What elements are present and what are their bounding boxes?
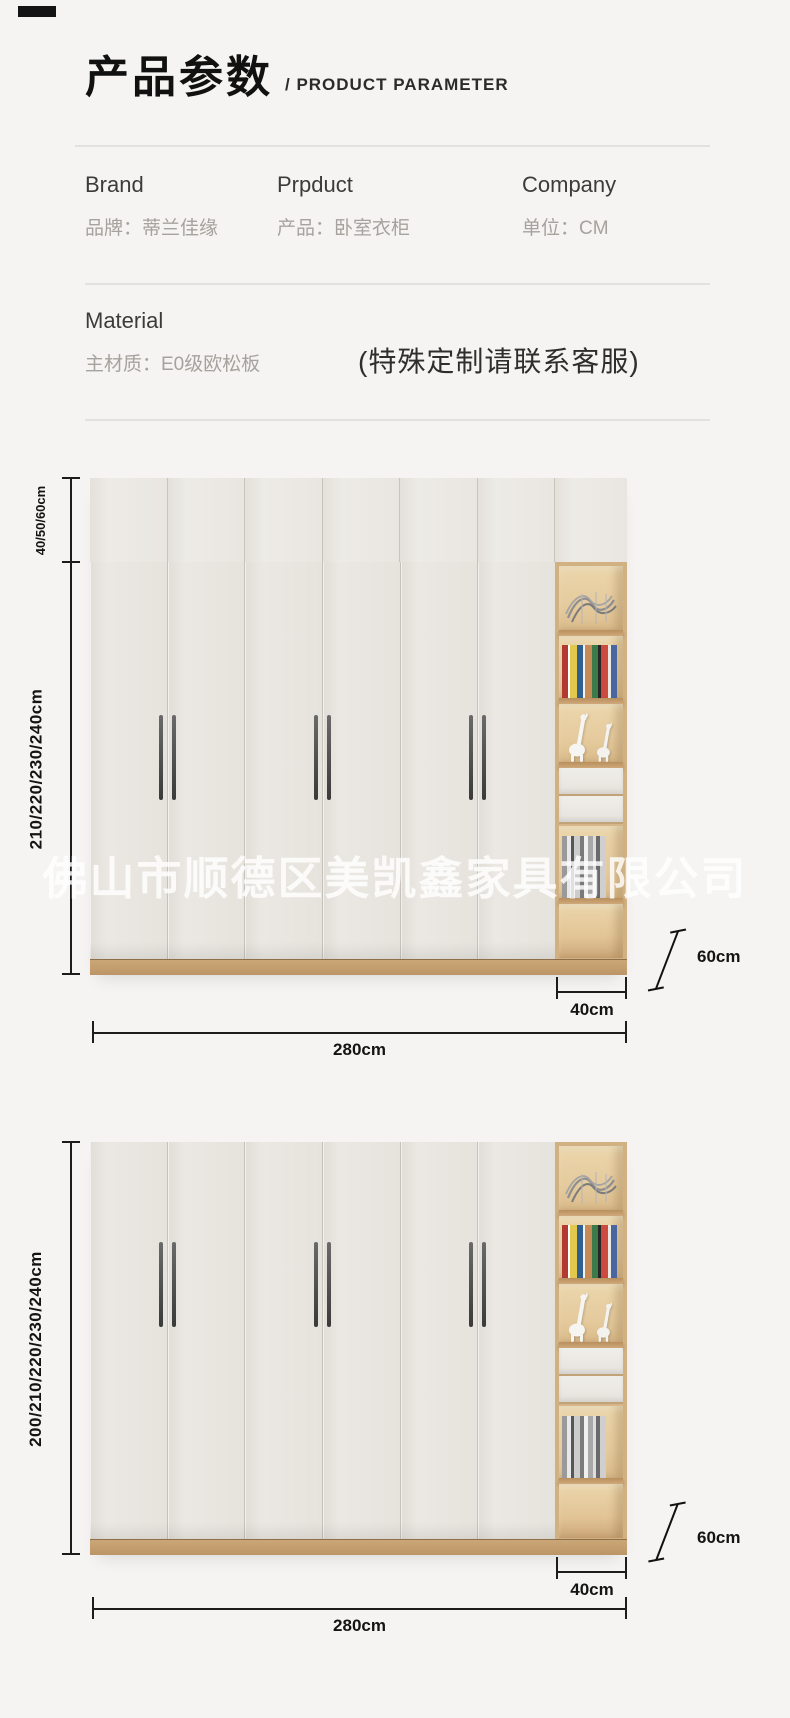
door-handle [172, 1242, 176, 1327]
figurine-compartment [559, 1284, 623, 1342]
dim-total-width-label: 280cm [92, 1040, 627, 1060]
top-cabinet-row [90, 478, 627, 564]
wardrobe-door [477, 1142, 555, 1540]
dim-top-height-label-wrap: 40/50/60cm [20, 478, 62, 562]
wardrobe-body [90, 1142, 627, 1540]
wardrobe-body [90, 562, 627, 960]
section-divider [75, 145, 710, 147]
dimension-tick [62, 477, 80, 479]
info-material: Material 主材质：E0级欧松板 [85, 308, 260, 376]
height-dimension-line [70, 478, 72, 975]
side-width-dimension-line [556, 991, 627, 993]
depth-dimension-line [655, 1504, 678, 1561]
page-title-zh: 产品参数 [85, 54, 273, 102]
top-cabinet-door [167, 478, 245, 562]
dimension-tick [556, 977, 558, 999]
door-handle [482, 715, 486, 800]
dim-body-height-label: 210/220/230/240cm [26, 688, 46, 849]
side-width-dimension-line [556, 1571, 627, 1573]
side-shelf-column [555, 562, 627, 960]
books-compartment [559, 1216, 623, 1278]
drawer-front [559, 1348, 623, 1376]
wardrobe-door [400, 562, 478, 960]
wardrobe-door [244, 1142, 322, 1540]
unit-label: Company [522, 172, 616, 198]
info-brand: Brand 品牌：蒂兰佳缘 [85, 172, 218, 240]
top-cabinet-door [477, 478, 555, 562]
top-cabinet-door [322, 478, 400, 562]
dim-body-height-label-wrap: 200/210/220/230/240cm [14, 1142, 58, 1555]
dimension-tick [625, 1557, 627, 1579]
books-compartment [559, 1406, 623, 1478]
books-decor [562, 1225, 618, 1278]
door-handle [469, 715, 473, 800]
page-title-en: / PRODUCT PARAMETER [285, 75, 509, 102]
drawer-front [559, 796, 623, 824]
wardrobe-door [322, 562, 400, 960]
corner-mark [18, 6, 56, 17]
door-handle [159, 715, 163, 800]
books-decor [562, 1416, 618, 1478]
material-value: 主材质：E0级欧松板 [85, 349, 260, 376]
top-cabinet-door [90, 478, 167, 562]
drawer-front [559, 768, 623, 796]
open-compartment [559, 1484, 623, 1538]
dimension-tick [625, 977, 627, 999]
wardrobe-door [322, 1142, 400, 1540]
books-decor [562, 645, 618, 698]
door-handle [482, 1242, 486, 1327]
product-value: 产品：卧室衣柜 [277, 213, 410, 240]
brand-value: 品牌：蒂兰佳缘 [85, 213, 218, 240]
hanger-icon [562, 1164, 620, 1208]
wardrobe-doors [90, 1142, 555, 1540]
door-handle [327, 1242, 331, 1327]
door-handle [314, 715, 318, 800]
books-compartment [559, 636, 623, 698]
info-product: Prpduct 产品：卧室衣柜 [277, 172, 410, 240]
dim-total-width-label: 280cm [92, 1616, 627, 1636]
hanger-compartment [559, 566, 623, 630]
custom-order-note: (特殊定制请联系客服) [358, 340, 640, 380]
product-parameter-page: 产品参数 / PRODUCT PARAMETER Brand 品牌：蒂兰佳缘 P… [0, 0, 790, 1718]
dim-depth-label: 60cm [697, 1528, 740, 1548]
figurine-compartment [559, 704, 623, 762]
wardrobe-door [167, 1142, 245, 1540]
giraffe-figurine [567, 1292, 591, 1342]
dim-top-height-label: 40/50/60cm [34, 485, 49, 554]
info-unit: Company 单位：CM [522, 172, 616, 240]
door-handle [469, 1242, 473, 1327]
total-width-dimension-line [92, 1608, 627, 1610]
wardrobe-door [477, 562, 555, 960]
dimension-tick [62, 973, 80, 975]
wardrobe-diagram-2 [90, 1142, 627, 1555]
top-cabinet-door [399, 478, 477, 562]
dim-body-height-label-wrap: 210/220/230/240cm [14, 562, 58, 975]
giraffe-figurine [595, 722, 615, 762]
giraffe-figurine [595, 1302, 615, 1342]
base-plinth [90, 959, 627, 975]
door-handle [327, 715, 331, 800]
side-shelf-column [555, 1142, 627, 1540]
dimension-tick [62, 1141, 80, 1143]
wardrobe-door [90, 562, 167, 960]
hanger-compartment [559, 1146, 623, 1210]
door-handle [314, 1242, 318, 1327]
depth-dimension-line [655, 931, 679, 990]
dim-side-width-label: 40cm [548, 1000, 636, 1020]
base-plinth [90, 1539, 627, 1555]
books-compartment [559, 826, 623, 898]
height-dimension-line [70, 1142, 72, 1555]
drawer-front [559, 1376, 623, 1404]
dim-side-width-label: 40cm [548, 1580, 636, 1600]
top-cabinet-door [244, 478, 322, 562]
door-handle [172, 715, 176, 800]
section-divider [85, 419, 710, 421]
open-compartment [559, 904, 623, 958]
dim-depth-label: 60cm [697, 947, 740, 967]
books-decor [562, 836, 618, 898]
product-label: Prpduct [277, 172, 410, 198]
material-label: Material [85, 308, 260, 334]
dimension-tick [62, 1553, 80, 1555]
giraffe-figurine [567, 712, 591, 762]
dimension-tick [556, 1557, 558, 1579]
top-cabinet-door [554, 478, 627, 562]
dimension-tick [62, 561, 80, 563]
wardrobe-door [244, 562, 322, 960]
section-divider [85, 283, 710, 285]
page-title: 产品参数 / PRODUCT PARAMETER [85, 54, 509, 102]
unit-value: 单位：CM [522, 213, 616, 240]
wardrobe-diagram-1 [90, 478, 627, 975]
wardrobe-door [400, 1142, 478, 1540]
wardrobe-door [90, 1142, 167, 1540]
wardrobe-door [167, 562, 245, 960]
door-handle [159, 1242, 163, 1327]
brand-label: Brand [85, 172, 218, 198]
hanger-icon [562, 584, 620, 628]
total-width-dimension-line [92, 1032, 627, 1034]
dim-body-height-label: 200/210/220/230/240cm [26, 1251, 46, 1447]
